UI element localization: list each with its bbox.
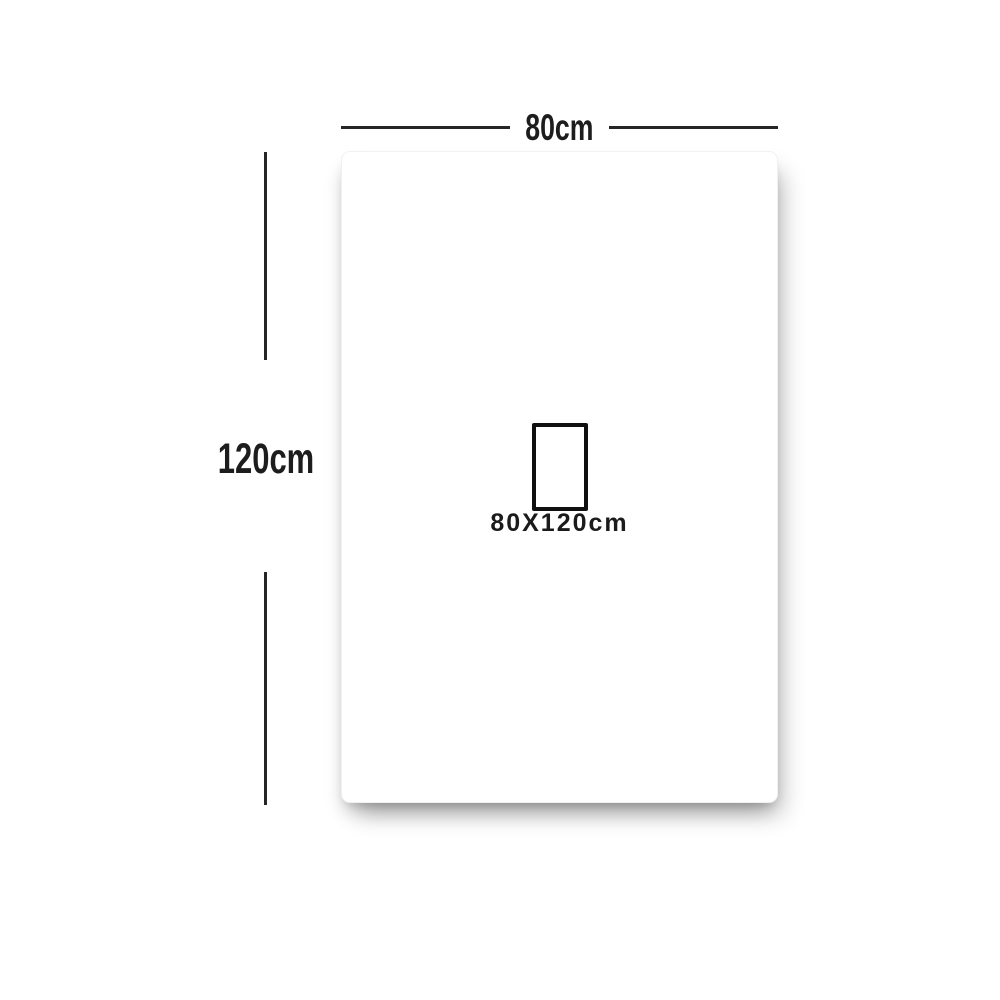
width-dimension: 80cm — [341, 108, 778, 146]
width-dimension-line-right — [609, 126, 778, 129]
size-indicator-box — [532, 423, 588, 511]
height-dimension-line-top — [264, 152, 267, 360]
width-dimension-label: 80cm — [524, 109, 595, 146]
size-indicator-label: 80X120cm — [342, 511, 777, 536]
product-sheet: 80X120cm — [341, 151, 778, 803]
width-dimension-line-left — [341, 126, 510, 129]
height-dimension-line-bottom — [264, 572, 267, 805]
height-dimension-label: 120cm — [208, 438, 323, 481]
diagram-canvas: 80cm 120cm 80X120cm — [0, 0, 1000, 1000]
